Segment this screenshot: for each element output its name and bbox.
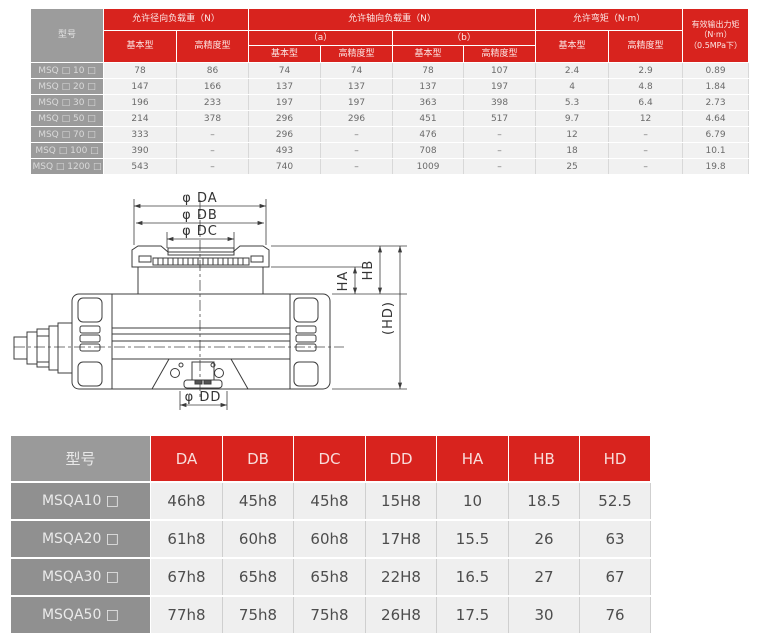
value-cell: 45h8 <box>294 482 366 520</box>
value-cell: 6.79 <box>683 127 749 143</box>
model-cell: MSQA20 □ <box>11 520 151 558</box>
value-cell: 333 <box>104 127 177 143</box>
value-cell: 18 <box>536 143 609 159</box>
value-cell: – <box>177 159 249 175</box>
value-cell: 75h8 <box>294 596 366 634</box>
table-row: MSQA10 □46h845h845h815H81018.552.5 <box>11 482 651 520</box>
actuator-outline <box>14 246 330 389</box>
value-cell: 86 <box>177 63 249 79</box>
value-cell: 296 <box>249 111 321 127</box>
model-cell: MSQ □ 30 □ <box>31 95 104 111</box>
model-cell: MSQ □ 100 □ <box>31 143 104 159</box>
table-row: MSQA20 □61h860h860h817H815.52663 <box>11 520 651 558</box>
value-cell: 4 <box>536 79 609 95</box>
model-cell: MSQA10 □ <box>11 482 151 520</box>
value-cell: 451 <box>393 111 464 127</box>
table-row: MSQA50 □77h875h875h826H817.53076 <box>11 596 651 634</box>
dim-label-db: φ DB <box>182 208 218 223</box>
value-cell: 77h8 <box>151 596 223 634</box>
value-cell: 2.4 <box>536 63 609 79</box>
output-torque-line1: 有效输出力矩 <box>683 20 748 30</box>
value-cell: 15H8 <box>366 482 437 520</box>
value-cell: 166 <box>177 79 249 95</box>
value-cell: 65h8 <box>294 558 366 596</box>
model-cell: MSQ □ 10 □ <box>31 63 104 79</box>
table-row: MSQ □ 100 □390–493–708–18–10.1 <box>31 143 749 159</box>
col-header-da: DA <box>151 436 223 483</box>
model-cell: MSQA30 □ <box>11 558 151 596</box>
value-cell: 197 <box>321 95 393 111</box>
value-cell: 493 <box>249 143 321 159</box>
value-cell: 74 <box>249 63 321 79</box>
value-cell: – <box>321 127 393 143</box>
axial-a-header: （a） <box>249 31 393 46</box>
value-cell: 26H8 <box>366 596 437 634</box>
value-cell: 1009 <box>393 159 464 175</box>
value-cell: 2.9 <box>609 63 683 79</box>
value-cell: 517 <box>464 111 536 127</box>
table-row: MSQ □ 70 □333–296–476–12–6.79 <box>31 127 749 143</box>
value-cell: 60h8 <box>223 520 294 558</box>
value-cell: – <box>177 127 249 143</box>
value-cell: 27 <box>509 558 580 596</box>
value-cell: 137 <box>393 79 464 95</box>
model-cell: MSQ □ 20 □ <box>31 79 104 95</box>
value-cell: – <box>321 159 393 175</box>
value-cell: 390 <box>104 143 177 159</box>
value-cell: 78 <box>393 63 464 79</box>
value-cell: – <box>609 127 683 143</box>
value-cell: 196 <box>104 95 177 111</box>
table-row: MSQ □ 50 □2143782962964515179.7124.64 <box>31 111 749 127</box>
dim-label-dd: φ DD <box>185 390 222 405</box>
table-row: MSQ □ 10 □78867474781072.42.90.89 <box>31 63 749 79</box>
value-cell: 15.5 <box>437 520 509 558</box>
value-cell: 30 <box>509 596 580 634</box>
technical-drawing: φ DA φ DB φ DC φ DD HA HB (HD) <box>12 186 432 431</box>
col-header-ha: HA <box>437 436 509 483</box>
datasheet-page: { "colors": { "accent_red": "#d8231e", "… <box>0 0 761 633</box>
value-cell: 60h8 <box>294 520 366 558</box>
table-row: MSQ □ 20 □14716613713713719744.81.84 <box>31 79 749 95</box>
value-cell: 67h8 <box>151 558 223 596</box>
value-cell: 4.64 <box>683 111 749 127</box>
model-cell: MSQ □ 1200 □ <box>31 159 104 175</box>
value-cell: 5.3 <box>536 95 609 111</box>
value-cell: 12 <box>609 111 683 127</box>
dim-label-hd: (HD) <box>381 301 396 335</box>
table-row: MSQA30 □67h865h865h822H816.52767 <box>11 558 651 596</box>
value-cell: 1.84 <box>683 79 749 95</box>
value-cell: 26 <box>509 520 580 558</box>
dim-label-hb: HB <box>361 260 376 281</box>
value-cell: 61h8 <box>151 520 223 558</box>
value-cell: 137 <box>321 79 393 95</box>
value-cell: 296 <box>249 127 321 143</box>
value-cell: 296 <box>321 111 393 127</box>
value-cell: 10 <box>437 482 509 520</box>
table-row: MSQ □ 1200 □543–740–1009–25–19.8 <box>31 159 749 175</box>
model-cell: MSQ □ 70 □ <box>31 127 104 143</box>
model-cell: MSQ □ 50 □ <box>31 111 104 127</box>
col-header-hb: HB <box>509 436 580 483</box>
model-column-header: 型号 <box>31 9 104 63</box>
value-cell: 17.5 <box>437 596 509 634</box>
value-cell: 197 <box>464 79 536 95</box>
value-cell: 740 <box>249 159 321 175</box>
value-cell: 378 <box>177 111 249 127</box>
model-cell: MSQA50 □ <box>11 596 151 634</box>
value-cell: 10.1 <box>683 143 749 159</box>
value-cell: 147 <box>104 79 177 95</box>
value-cell: 6.4 <box>609 95 683 111</box>
output-torque-line2: （N·m） <box>683 30 748 40</box>
axial-b-precision-header: 高精度型 <box>464 46 536 63</box>
moment-header: 允许弯矩（N·m） <box>536 9 683 31</box>
value-cell: 233 <box>177 95 249 111</box>
value-cell: 197 <box>249 95 321 111</box>
model-column-header: 型号 <box>11 436 151 483</box>
radial-precision-header: 高精度型 <box>177 31 249 63</box>
dim-label-ha: HA <box>336 271 351 292</box>
axial-a-basic-header: 基本型 <box>249 46 321 63</box>
value-cell: 16.5 <box>437 558 509 596</box>
dim-label-dc: φ DC <box>182 224 218 239</box>
col-header-db: DB <box>223 436 294 483</box>
value-cell: 45h8 <box>223 482 294 520</box>
value-cell: – <box>609 159 683 175</box>
value-cell: – <box>464 127 536 143</box>
table-row: MSQ □ 30 □1962331971973633985.36.42.73 <box>31 95 749 111</box>
value-cell: – <box>321 143 393 159</box>
radial-basic-header: 基本型 <box>104 31 177 63</box>
value-cell: 398 <box>464 95 536 111</box>
value-cell: 75h8 <box>223 596 294 634</box>
value-cell: 476 <box>393 127 464 143</box>
moment-basic-header: 基本型 <box>536 31 609 63</box>
value-cell: 18.5 <box>509 482 580 520</box>
output-torque-header: 有效输出力矩 （N·m） （0.5MPa下） <box>683 9 749 63</box>
axial-b-basic-header: 基本型 <box>393 46 464 63</box>
axial-a-precision-header: 高精度型 <box>321 46 393 63</box>
value-cell: 17H8 <box>366 520 437 558</box>
axial-load-header: 允许轴向负载重（N） <box>249 9 536 31</box>
value-cell: 137 <box>249 79 321 95</box>
dim-label-da: φ DA <box>182 191 217 206</box>
value-cell: – <box>177 143 249 159</box>
value-cell: 19.8 <box>683 159 749 175</box>
value-cell: – <box>609 143 683 159</box>
value-cell: 76 <box>580 596 651 634</box>
value-cell: 74 <box>321 63 393 79</box>
value-cell: 12 <box>536 127 609 143</box>
value-cell: 25 <box>536 159 609 175</box>
load-spec-table: 型号 允许径向负载重（N） 允许轴向负载重（N） 允许弯矩（N·m） 有效输出力… <box>30 8 749 175</box>
radial-load-header: 允许径向负载重（N） <box>104 9 249 31</box>
col-header-dc: DC <box>294 436 366 483</box>
value-cell: 107 <box>464 63 536 79</box>
value-cell: 52.5 <box>580 482 651 520</box>
value-cell: 543 <box>104 159 177 175</box>
value-cell: 67 <box>580 558 651 596</box>
moment-precision-header: 高精度型 <box>609 31 683 63</box>
value-cell: 214 <box>104 111 177 127</box>
value-cell: 9.7 <box>536 111 609 127</box>
value-cell: 46h8 <box>151 482 223 520</box>
dimension-lines <box>134 199 407 410</box>
value-cell: 22H8 <box>366 558 437 596</box>
value-cell: 65h8 <box>223 558 294 596</box>
value-cell: – <box>464 159 536 175</box>
value-cell: 2.73 <box>683 95 749 111</box>
value-cell: 4.8 <box>609 79 683 95</box>
value-cell: 363 <box>393 95 464 111</box>
col-header-hd: HD <box>580 436 651 483</box>
axial-b-header: （b） <box>393 31 536 46</box>
col-header-dd: DD <box>366 436 437 483</box>
dimension-table: 型号 DA DB DC DD HA HB HD MSQA10 □46h845h8… <box>10 435 651 635</box>
value-cell: 0.89 <box>683 63 749 79</box>
output-torque-line3: （0.5MPa下） <box>683 41 748 51</box>
value-cell: – <box>464 143 536 159</box>
value-cell: 708 <box>393 143 464 159</box>
value-cell: 63 <box>580 520 651 558</box>
value-cell: 78 <box>104 63 177 79</box>
